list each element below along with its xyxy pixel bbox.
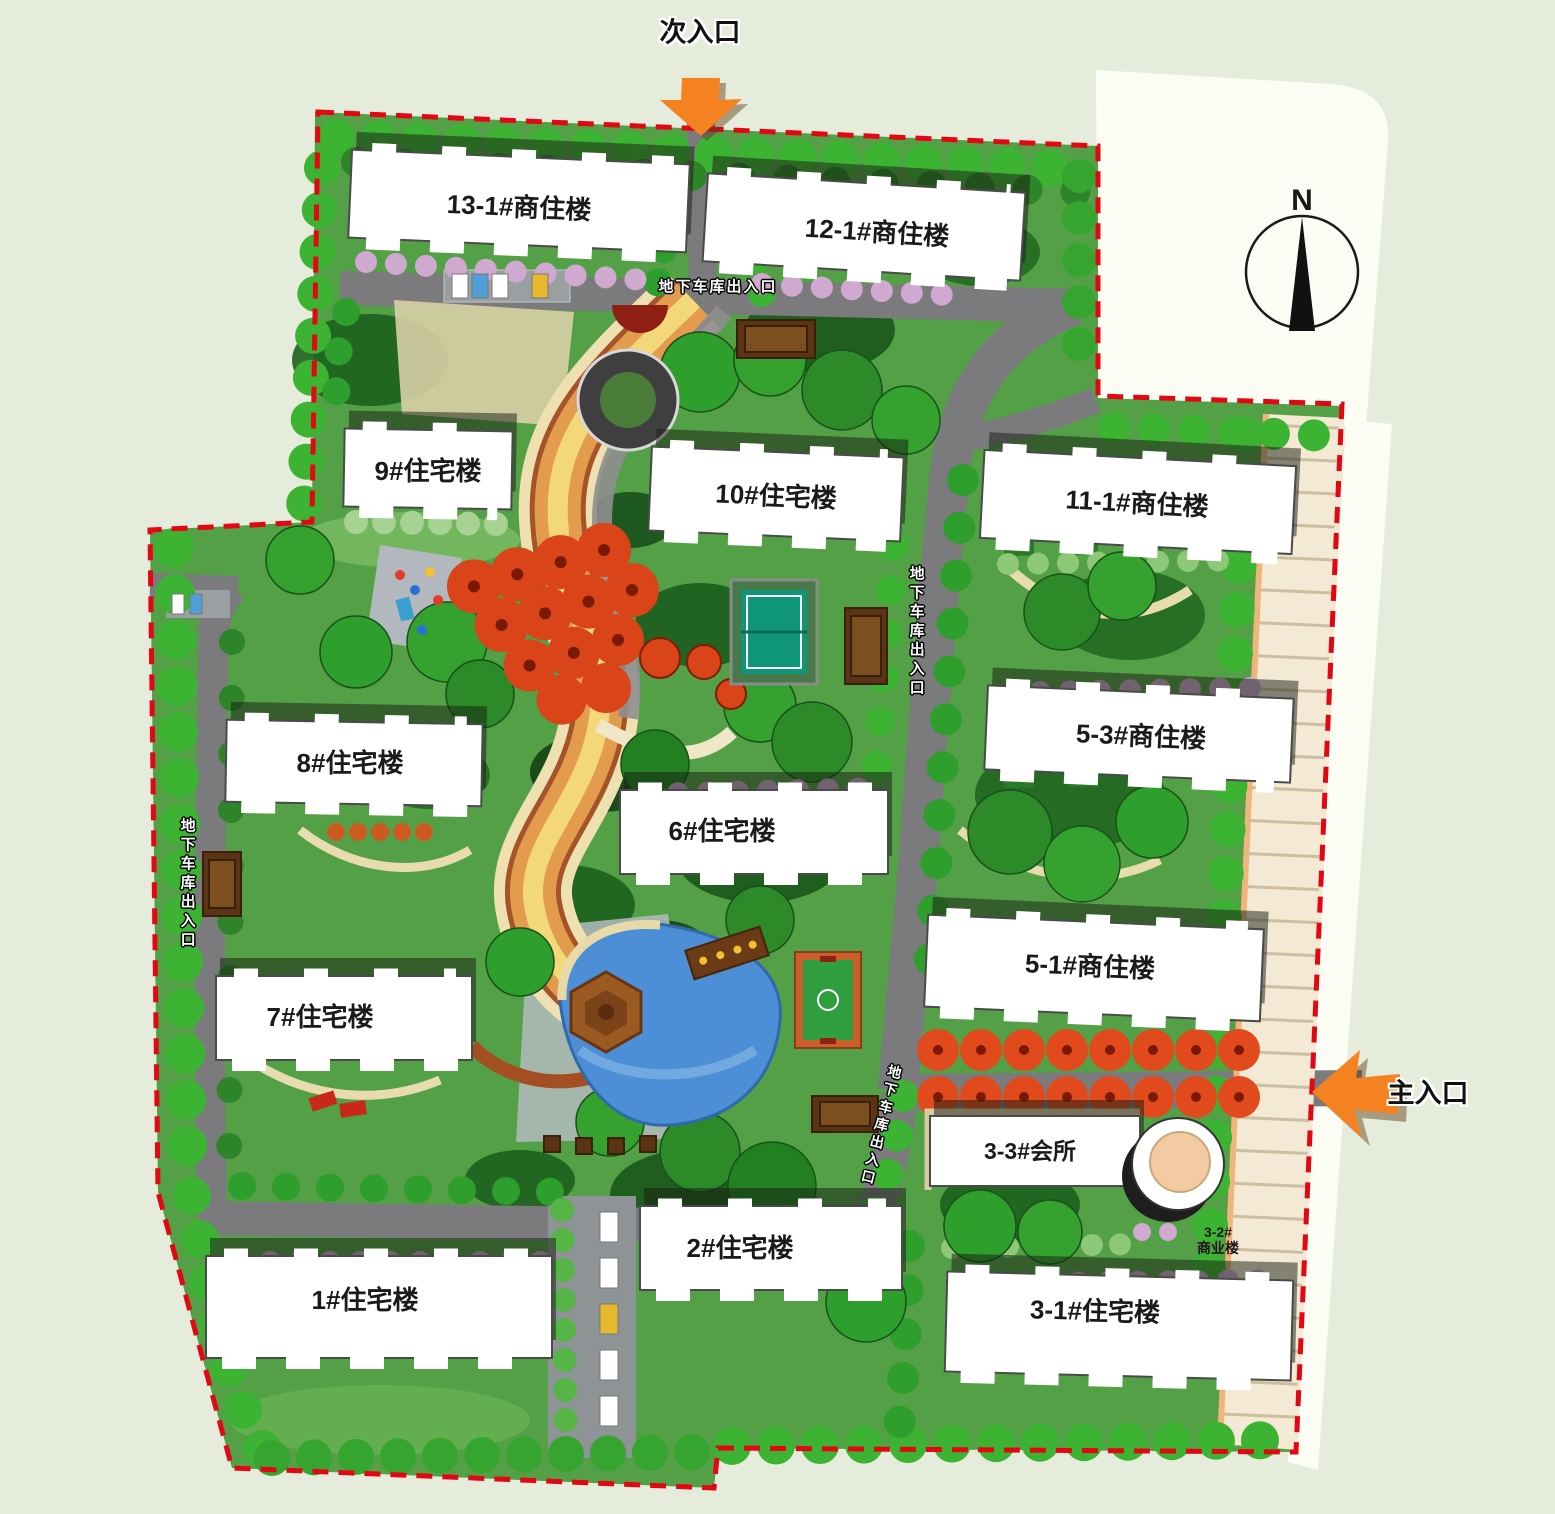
building-label-3-2-line1: 3-2# bbox=[1197, 1224, 1239, 1240]
building-label-3-1: 3-1#住宅楼 bbox=[1030, 1295, 1161, 1328]
building-label-7: 7#住宅楼 bbox=[267, 1003, 374, 1033]
compass-north-label: N bbox=[1291, 184, 1313, 219]
building-label-5-3: 5-3#商住楼 bbox=[1075, 719, 1206, 755]
garage-entrance-label-right: 地下车库出入口 bbox=[907, 566, 924, 699]
building-label-3-2: 3-2# 商业楼 bbox=[1197, 1224, 1239, 1256]
ball-court bbox=[795, 952, 861, 1048]
building-label-3-3: 3-3#会所 bbox=[984, 1138, 1076, 1164]
building-label-8: 8#住宅楼 bbox=[297, 749, 404, 779]
secondary-entrance-label: 次入口 bbox=[660, 17, 741, 48]
building-label-2: 2#住宅楼 bbox=[687, 1234, 794, 1264]
building-label-5-1: 5-1#商住楼 bbox=[1024, 949, 1155, 985]
building-label-6: 6#住宅楼 bbox=[669, 817, 776, 847]
main-entrance-label: 主入口 bbox=[1388, 1078, 1469, 1109]
garage-entrance-label-left: 地下车库出入口 bbox=[178, 818, 195, 951]
building-label-13-1: 13-1#商住楼 bbox=[446, 190, 592, 226]
building-label-10: 10#住宅楼 bbox=[715, 479, 838, 514]
building-label-3-2-line2: 商业楼 bbox=[1197, 1240, 1239, 1256]
tennis-court bbox=[731, 580, 817, 684]
building-label-1: 1#住宅楼 bbox=[312, 1286, 419, 1316]
site-plan: 次入口 主入口 N 地下车库出入口 地下车库出入口 地下车库出入口 地下车库出入… bbox=[0, 0, 1555, 1514]
site-plan-canvas bbox=[0, 0, 1555, 1514]
garage-entrance-label-top: 地下车库出入口 bbox=[658, 278, 777, 295]
building-label-9: 9#住宅楼 bbox=[375, 457, 482, 487]
